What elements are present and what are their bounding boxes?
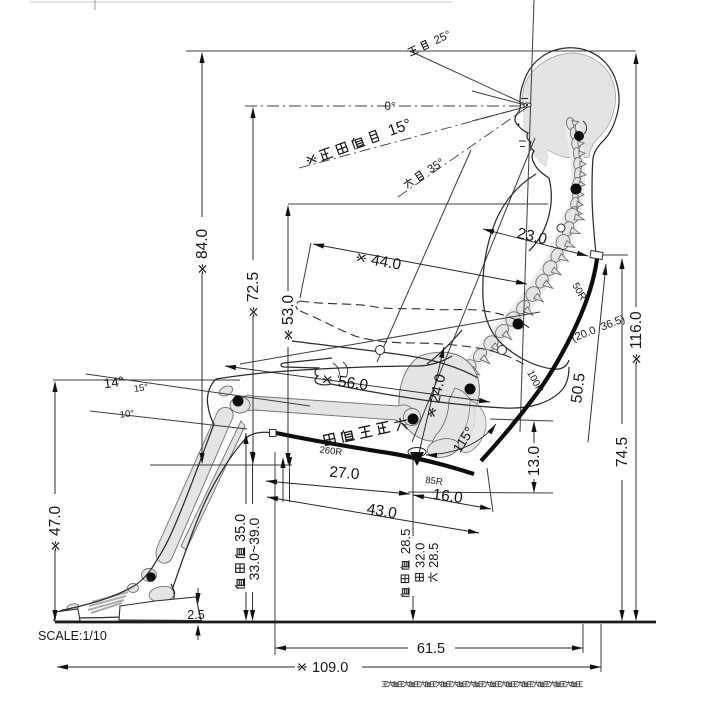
svg-text:10°: 10° <box>119 408 135 420</box>
svg-text:85R: 85R <box>425 475 444 488</box>
svg-text:61.5: 61.5 <box>417 641 445 657</box>
svg-text:13.0: 13.0 <box>526 446 543 477</box>
svg-text:15°: 15° <box>133 382 149 395</box>
svg-text:72.5: 72.5 <box>245 272 262 302</box>
svg-text:2.5: 2.5 <box>187 608 204 622</box>
svg-text:109.0: 109.0 <box>312 660 348 676</box>
svg-text:84.0: 84.0 <box>194 228 211 259</box>
svg-text:0°: 0° <box>385 101 396 113</box>
svg-text:53.0: 53.0 <box>280 294 297 325</box>
svg-text:28.5: 28.5 <box>398 529 413 554</box>
svg-text:14°: 14° <box>103 374 125 392</box>
svg-text:47.0: 47.0 <box>47 505 64 536</box>
svg-text:33.0~39.0: 33.0~39.0 <box>246 517 262 580</box>
svg-text:27.0: 27.0 <box>329 464 361 484</box>
svg-text:SCALE:1/10: SCALE:1/10 <box>38 629 107 643</box>
svg-text:74.5: 74.5 <box>614 437 631 467</box>
svg-text:116.0: 116.0 <box>628 311 645 349</box>
svg-text:28.5: 28.5 <box>426 543 441 568</box>
